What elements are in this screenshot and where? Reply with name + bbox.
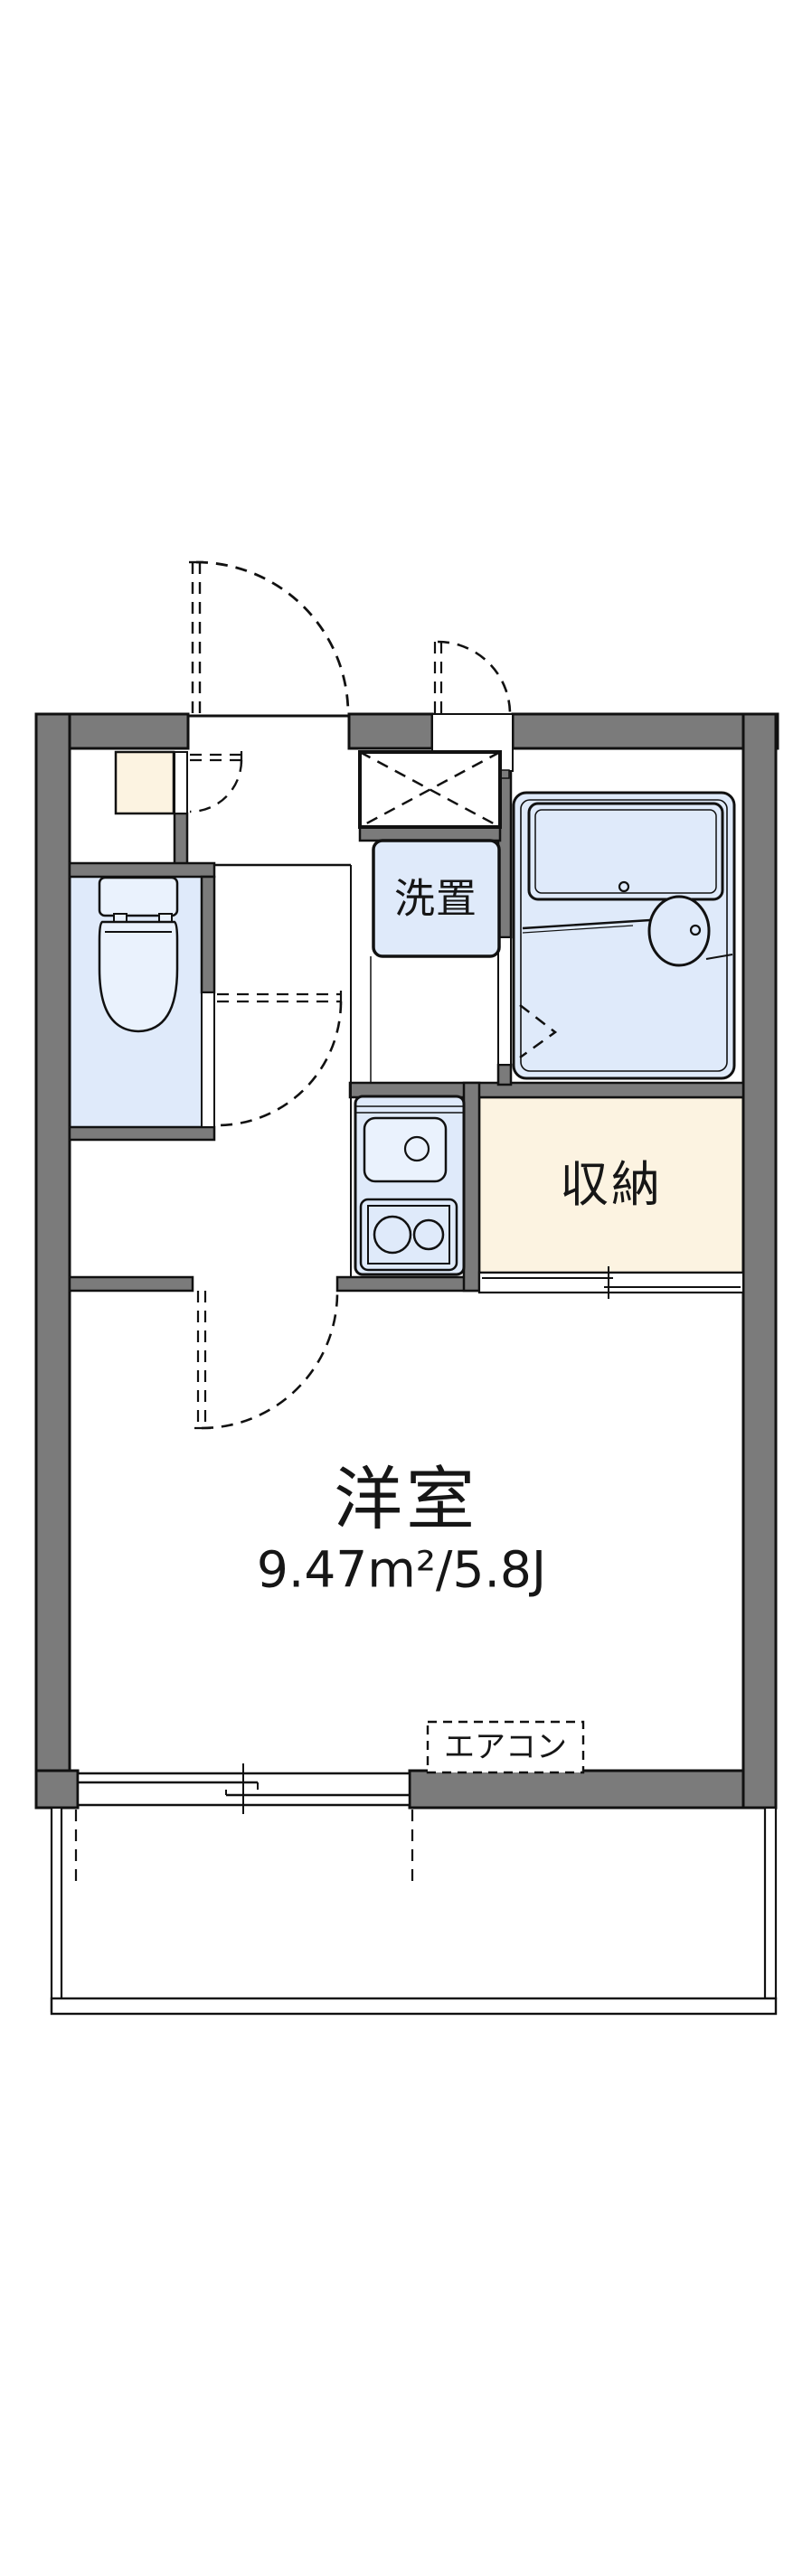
toilet-door-opening bbox=[202, 992, 214, 1127]
wall-toilet-bottom bbox=[70, 1127, 214, 1140]
wall-kitchen-closet bbox=[464, 1083, 479, 1291]
wall-bottom-right bbox=[410, 1771, 743, 1808]
entrance-door-swing bbox=[196, 562, 348, 714]
toilet-hinge-right bbox=[159, 914, 172, 922]
closet-label: 収納 bbox=[560, 1161, 663, 1209]
closet-sliding-door bbox=[479, 1273, 743, 1293]
laundry-label: 洗置 bbox=[394, 879, 477, 919]
floor-plan-drawing bbox=[0, 0, 812, 2576]
floor-plan-page: 洗置 収納 洋室 9.47m²/5.8J エアコン bbox=[0, 0, 812, 2576]
wall-room-left bbox=[70, 1277, 193, 1291]
wall-bath-left-lower bbox=[498, 1065, 511, 1085]
western-room-size-label: 9.47m²/5.8J bbox=[257, 1546, 546, 1595]
wall-left bbox=[36, 714, 70, 1808]
wall-bottom-left bbox=[36, 1771, 78, 1808]
balcony-rail-bottom bbox=[52, 1998, 776, 2014]
wall-top-mid bbox=[349, 714, 432, 748]
wall-room-mid bbox=[337, 1277, 479, 1291]
balcony-rail-right bbox=[765, 1808, 776, 1998]
wall-toilet-right bbox=[202, 877, 214, 992]
shoebox-door-swing bbox=[190, 760, 241, 812]
wall-right bbox=[743, 714, 776, 1808]
wall-toilet-top bbox=[70, 863, 214, 877]
wall-top-right bbox=[513, 714, 778, 748]
toilet-tank bbox=[99, 878, 177, 916]
room-door-swing bbox=[202, 1293, 337, 1428]
wall-genkan-stub bbox=[175, 813, 187, 866]
toilet-door-swing bbox=[217, 1001, 341, 1125]
toilet-hinge-left bbox=[114, 914, 127, 922]
service-door-swing bbox=[438, 642, 510, 714]
balcony-rail-left bbox=[52, 1808, 61, 2011]
aircon-label: エアコン bbox=[444, 1732, 567, 1763]
bath-door-opening bbox=[498, 937, 511, 1065]
toilet-bowl bbox=[99, 922, 177, 1031]
genkan-floor bbox=[116, 752, 174, 813]
western-room-label: 洋室 bbox=[334, 1465, 478, 1534]
wall-laundry-divider bbox=[360, 827, 500, 841]
shoebox-door-opening bbox=[175, 752, 187, 813]
